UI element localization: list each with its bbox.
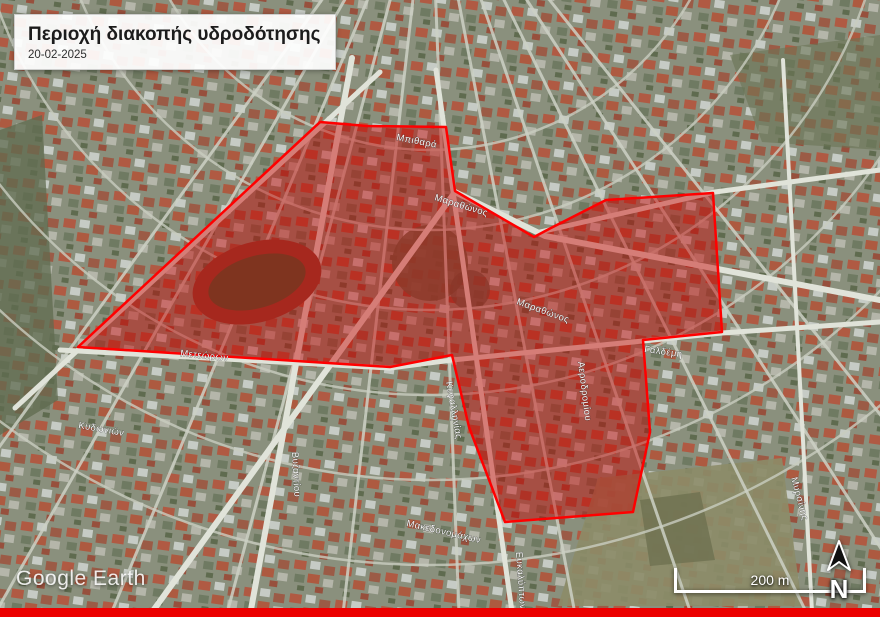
satellite-map[interactable]: Μετεώρων Κυδωνιών Μαραθώνος Γαλδέμη Αερο… [0, 0, 880, 608]
title-card: Περιοχή διακοπής υδροδότησης 20-02-2025 [14, 14, 336, 70]
google-earth-watermark: Google Earth [16, 567, 146, 591]
north-indicator: N [822, 540, 856, 601]
north-arrow-icon [826, 540, 852, 572]
bottom-red-bar [0, 608, 880, 617]
outage-date: 20-02-2025 [28, 49, 320, 61]
page-title: Περιοχή διακοπής υδροδότησης [28, 24, 320, 46]
north-label: N [822, 577, 856, 601]
map-screenshot: Μετεώρων Κυδωνιών Μαραθώνος Γαλδέμη Αερο… [0, 0, 880, 617]
